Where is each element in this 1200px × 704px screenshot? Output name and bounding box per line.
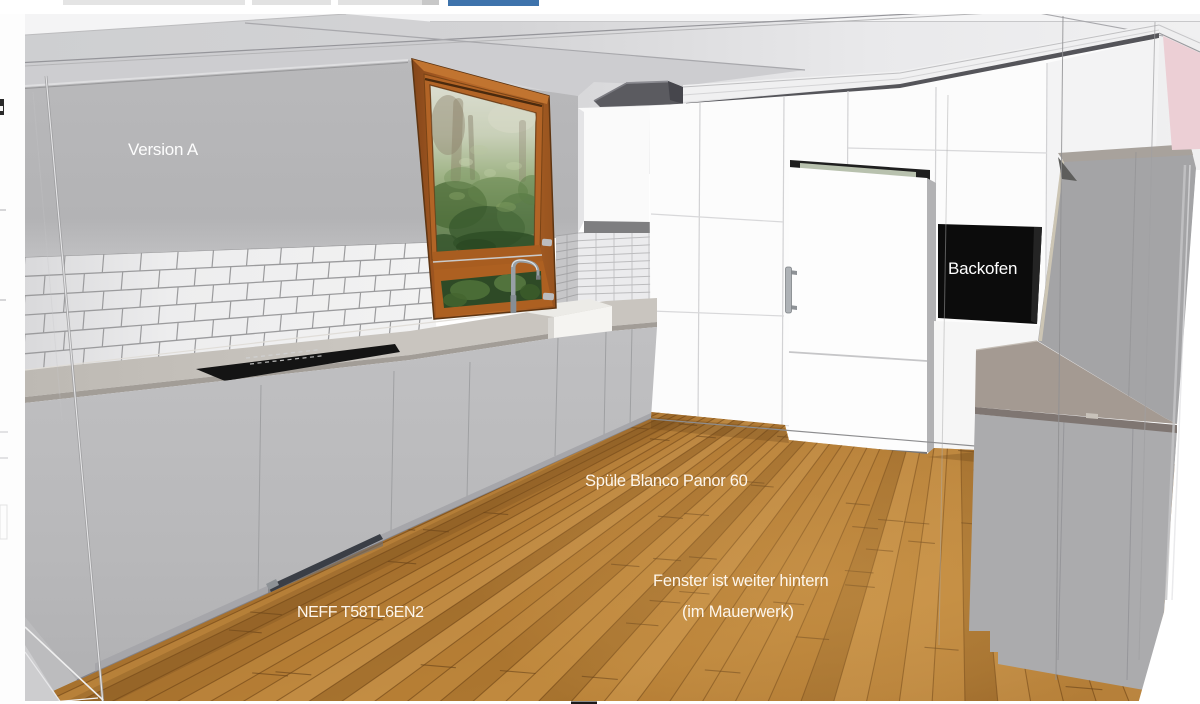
svg-text:(im Mauerwerk): (im Mauerwerk): [682, 603, 794, 621]
svg-text:NEFF T58TL6EN2: NEFF T58TL6EN2: [297, 604, 424, 621]
svg-text:Backofen: Backofen: [948, 259, 1017, 278]
svg-text:Version A: Version A: [128, 140, 199, 159]
svg-text:Spüle Blanco Panor 60: Spüle Blanco Panor 60: [585, 472, 748, 490]
svg-text:Fenster ist weiter hintern: Fenster ist weiter hintern: [653, 572, 828, 590]
